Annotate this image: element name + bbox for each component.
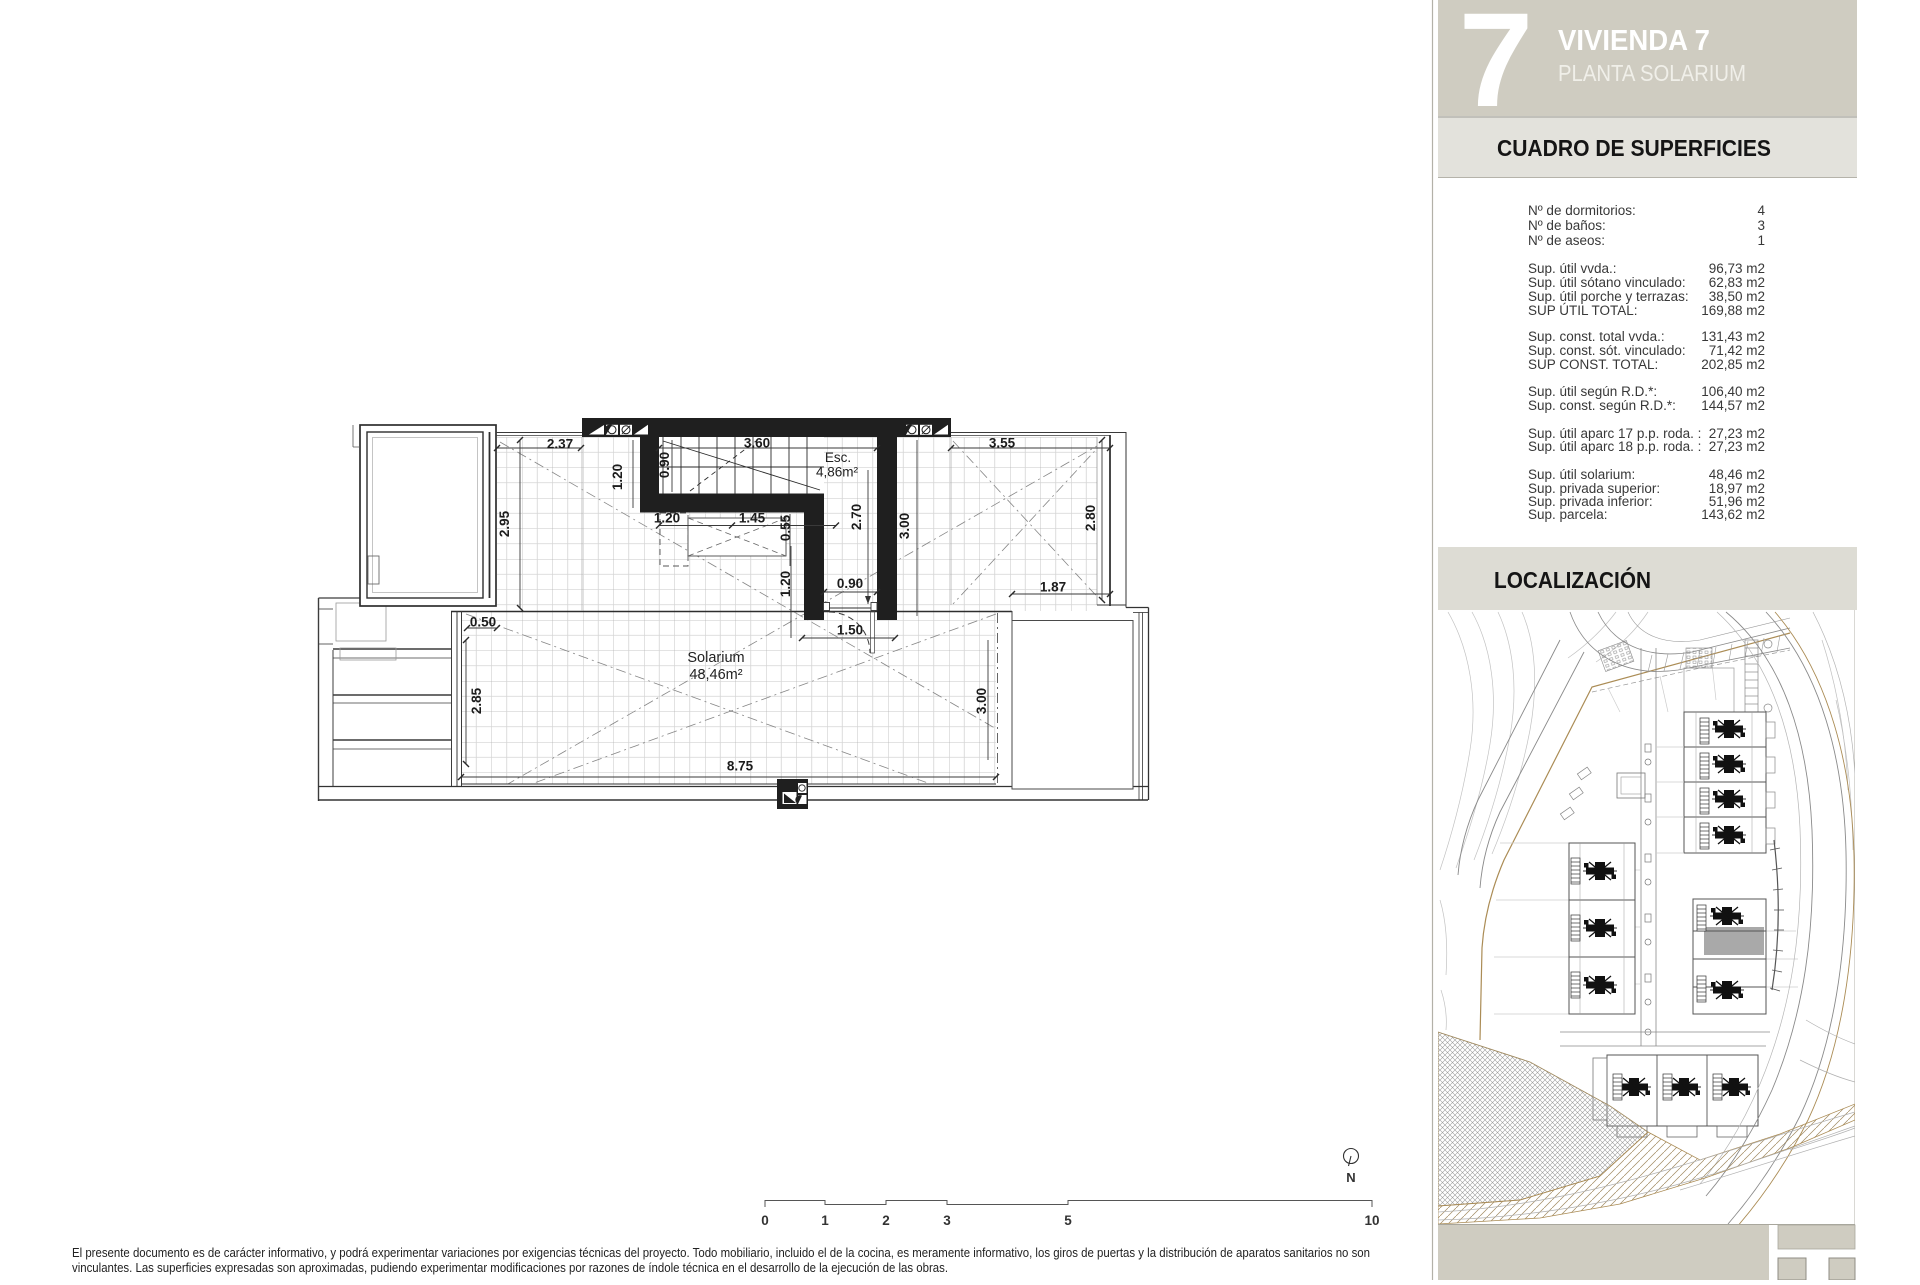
svg-text:vinculantes. Las superficies e: vinculantes. Las superficies expresadas … [72, 1260, 948, 1275]
svg-text:131,43 m2: 131,43 m2 [1701, 329, 1765, 344]
svg-text:VIVIENDA 7: VIVIENDA 7 [1558, 25, 1710, 57]
svg-text:10: 10 [1364, 1213, 1379, 1228]
svg-text:1.20: 1.20 [778, 571, 793, 597]
svg-text:El presente documento es de ca: El presente documento es de carácter inf… [72, 1245, 1370, 1260]
svg-text:Sup. útil aparc 18 p.p. roda.: Sup. útil aparc 18 p.p. roda. : [1528, 439, 1701, 454]
svg-text:27,23 m2: 27,23 m2 [1709, 439, 1765, 454]
svg-text:4,86m²: 4,86m² [816, 465, 859, 480]
svg-text:SUP CONST. TOTAL:: SUP CONST. TOTAL: [1528, 357, 1658, 372]
svg-text:7: 7 [1459, 0, 1534, 135]
svg-text:Nº de baños:: Nº de baños: [1528, 218, 1606, 233]
svg-text:96,73 m2: 96,73 m2 [1709, 261, 1765, 276]
svg-text:SUP ÚTIL TOTAL:: SUP ÚTIL TOTAL: [1528, 303, 1638, 318]
svg-text:48,46m²: 48,46m² [689, 667, 742, 683]
svg-text:144,57 m2: 144,57 m2 [1701, 398, 1765, 413]
svg-text:4: 4 [1757, 203, 1765, 218]
svg-text:1: 1 [821, 1213, 829, 1228]
svg-text:0.90: 0.90 [657, 452, 672, 478]
svg-text:Sup. útil vvda.:: Sup. útil vvda.: [1528, 261, 1617, 276]
svg-text:62,83 m2: 62,83 m2 [1709, 275, 1765, 290]
svg-text:5: 5 [1064, 1213, 1072, 1228]
svg-text:Sup. útil porche y terrazas:: Sup. útil porche y terrazas: [1528, 289, 1689, 304]
svg-text:2: 2 [882, 1213, 890, 1228]
svg-text:Sup. parcela:: Sup. parcela: [1528, 507, 1608, 522]
svg-text:1.50: 1.50 [837, 623, 863, 638]
svg-text:Esc.: Esc. [825, 450, 851, 465]
svg-text:Sup. const. sót. vinculado:: Sup. const. sót. vinculado: [1528, 343, 1686, 358]
svg-text:71,42 m2: 71,42 m2 [1709, 343, 1765, 358]
svg-text:143,62 m2: 143,62 m2 [1701, 507, 1765, 522]
svg-text:1: 1 [1757, 233, 1765, 248]
svg-text:1.20: 1.20 [654, 511, 680, 526]
svg-text:LOCALIZACIÓN: LOCALIZACIÓN [1494, 566, 1651, 593]
svg-text:Sup. const. según R.D.*:: Sup. const. según R.D.*: [1528, 398, 1676, 413]
svg-text:Sup. útil sótano vinculado:: Sup. útil sótano vinculado: [1528, 275, 1686, 290]
svg-text:3.55: 3.55 [989, 436, 1016, 451]
svg-text:0.90: 0.90 [837, 576, 863, 591]
svg-text:Sup. const. total vvda.:: Sup. const. total vvda.: [1528, 329, 1665, 344]
svg-text:2.85: 2.85 [469, 687, 484, 714]
svg-text:202,85 m2: 202,85 m2 [1701, 357, 1765, 372]
svg-text:Nº de aseos:: Nº de aseos: [1528, 233, 1605, 248]
svg-text:48,46 m2: 48,46 m2 [1709, 467, 1765, 482]
svg-text:Sup. útil según R.D.*:: Sup. útil según R.D.*: [1528, 384, 1657, 399]
svg-text:3.00: 3.00 [974, 688, 989, 714]
svg-text:0.50: 0.50 [470, 615, 496, 630]
svg-text:3.60: 3.60 [744, 436, 770, 451]
svg-text:PLANTA SOLARIUM: PLANTA SOLARIUM [1558, 60, 1746, 86]
svg-text:8.75: 8.75 [727, 759, 754, 774]
svg-text:1.87: 1.87 [1040, 580, 1066, 595]
svg-text:1.45: 1.45 [739, 511, 766, 526]
svg-text:2.95: 2.95 [497, 510, 512, 537]
svg-text:N: N [1346, 1170, 1355, 1185]
svg-text:3: 3 [943, 1213, 951, 1228]
svg-text:2.70: 2.70 [849, 504, 864, 530]
svg-text:2.37: 2.37 [547, 437, 573, 452]
svg-text:169,88 m2: 169,88 m2 [1701, 303, 1765, 318]
svg-text:Nº de dormitorios:: Nº de dormitorios: [1528, 203, 1636, 218]
svg-text:Solarium: Solarium [687, 650, 744, 666]
svg-text:Sup. útil solarium:: Sup. útil solarium: [1528, 467, 1635, 482]
svg-text:1.20: 1.20 [610, 464, 625, 490]
svg-text:3.00: 3.00 [897, 513, 912, 539]
svg-text:3: 3 [1757, 218, 1765, 233]
svg-text:CUADRO DE SUPERFICIES: CUADRO DE SUPERFICIES [1497, 135, 1771, 161]
svg-text:2.80: 2.80 [1083, 505, 1098, 531]
svg-text:0: 0 [761, 1213, 769, 1228]
svg-text:106,40 m2: 106,40 m2 [1701, 384, 1765, 399]
svg-text:0.55: 0.55 [778, 514, 793, 541]
svg-text:38,50 m2: 38,50 m2 [1709, 289, 1765, 304]
